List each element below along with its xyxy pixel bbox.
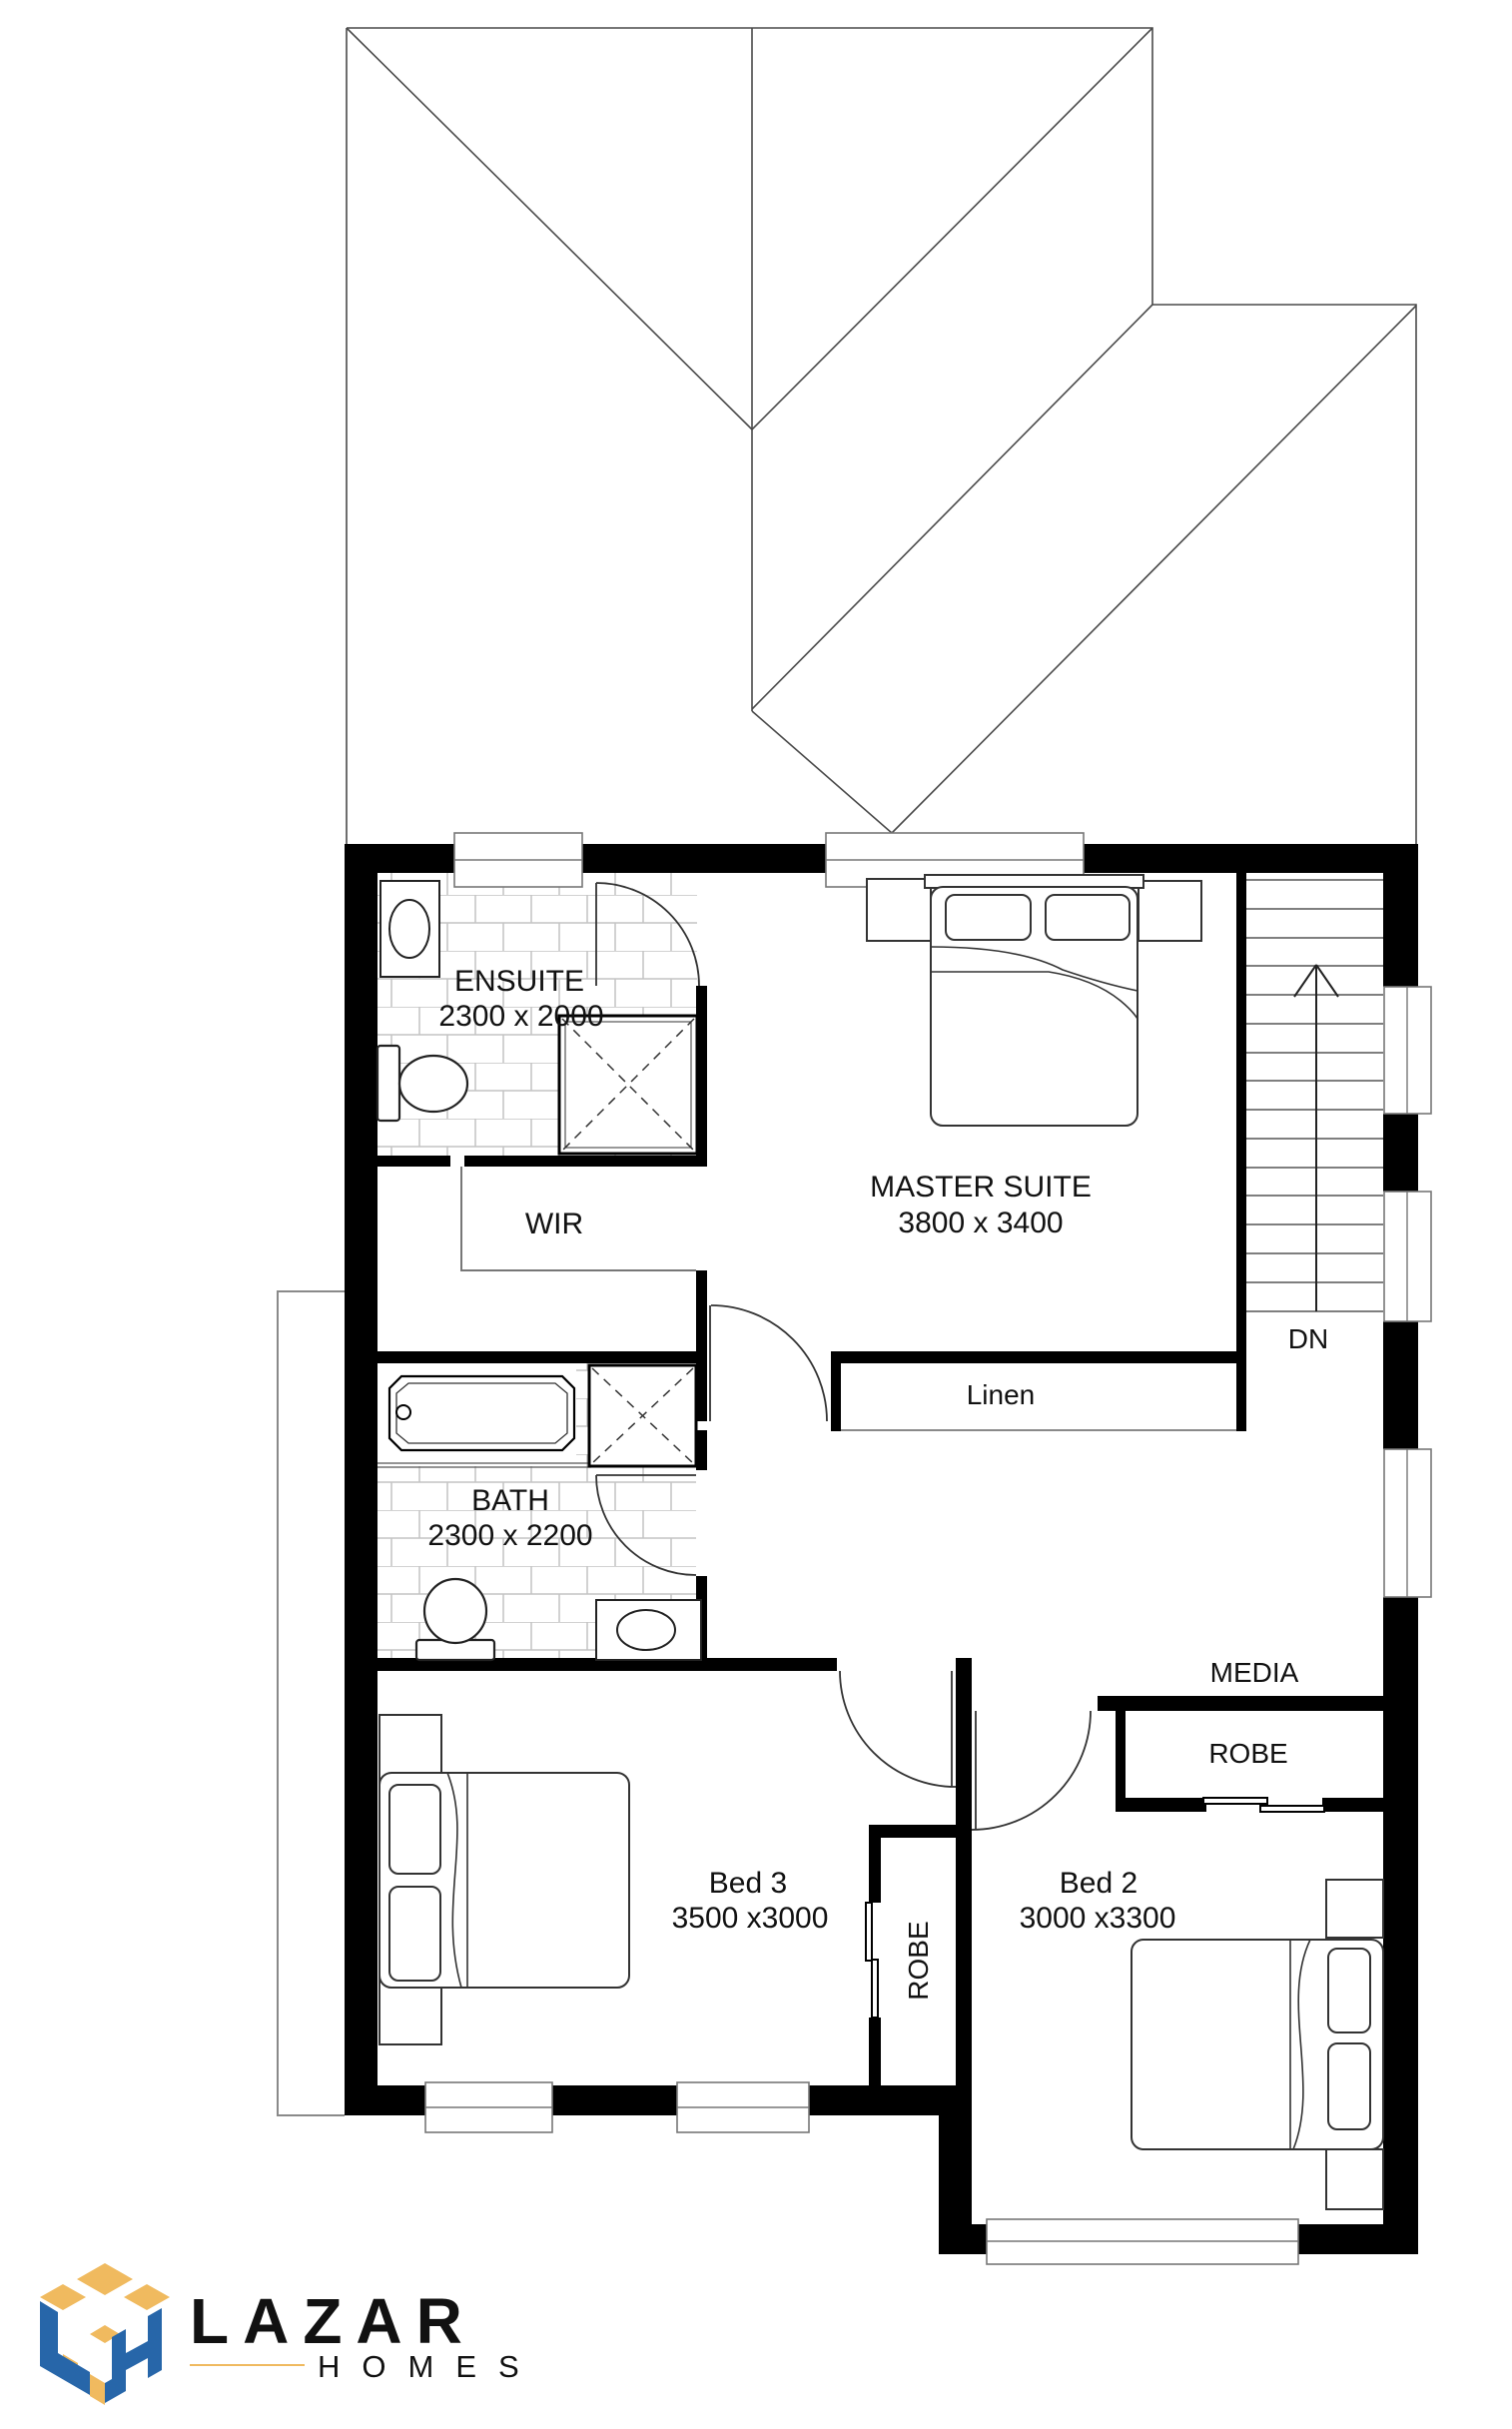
ensuite-vanity <box>380 881 439 977</box>
bath-tiled-strip <box>576 1363 589 1466</box>
bedside-table <box>867 879 931 941</box>
lazar-homes-logo: LAZAR HOMES <box>40 2263 541 2405</box>
pillow <box>389 1887 440 1981</box>
pillow <box>1328 1949 1370 2032</box>
ensuite-shower <box>559 1016 697 1154</box>
ensuite-label: ENSUITE <box>454 965 584 998</box>
wir-label: WIR <box>525 1208 583 1240</box>
bed2-label: Bed 2 <box>1060 1867 1137 1900</box>
pillow <box>1046 895 1130 940</box>
pillow <box>1328 2043 1370 2129</box>
master-dims: 3800 x 3400 <box>898 1207 1063 1239</box>
bedside-table <box>1326 2149 1383 2209</box>
bed3-bed <box>379 1715 629 2044</box>
bath-dims: 2300 x 2200 <box>427 1519 592 1552</box>
bath-vanity <box>596 1600 701 1660</box>
logo-brand-text: LAZAR <box>190 2285 476 2357</box>
stair-treads <box>1246 880 1383 1311</box>
bed3-dims: 3500 x3000 <box>672 1902 829 1935</box>
pillow <box>389 1785 440 1874</box>
robe-bed2-label: ROBE <box>1208 1738 1287 1769</box>
bed3-door <box>840 1671 956 1787</box>
floor-plan-drawing: ENSUITE 2300 x 2000 MASTER SUITE 3800 x … <box>0 0 1512 2429</box>
logo-sub-text: HOMES <box>318 2349 541 2384</box>
stairs-dn-label: DN <box>1288 1323 1328 1354</box>
bath-label: BATH <box>471 1484 549 1517</box>
roof-outline <box>347 28 1416 844</box>
bed2-door <box>972 1711 1091 1830</box>
staircase <box>1246 880 1383 1311</box>
bathtub <box>389 1376 574 1450</box>
bed3-label: Bed 3 <box>709 1867 787 1900</box>
bath-hob-line <box>378 1463 591 1467</box>
bedside-table <box>1138 881 1201 941</box>
bed2-dims: 3000 x3300 <box>1020 1902 1176 1935</box>
media-label: MEDIA <box>1210 1657 1299 1688</box>
linen-label: Linen <box>967 1379 1036 1410</box>
lower-floor-outline <box>278 1291 345 2115</box>
ensuite-dims: 2300 x 2000 <box>438 1000 603 1033</box>
master-label: MASTER SUITE <box>870 1171 1092 1204</box>
floor-plan-page: ENSUITE 2300 x 2000 MASTER SUITE 3800 x … <box>0 0 1512 2429</box>
logo-cube-icon <box>40 2263 170 2405</box>
master-bed <box>867 875 1201 1126</box>
bath-shower <box>589 1365 696 1466</box>
pillow <box>946 895 1031 940</box>
bedside-table <box>1326 1880 1383 1938</box>
hall-door <box>710 1305 827 1421</box>
robe-bed3-label: ROBE <box>903 1921 934 2000</box>
